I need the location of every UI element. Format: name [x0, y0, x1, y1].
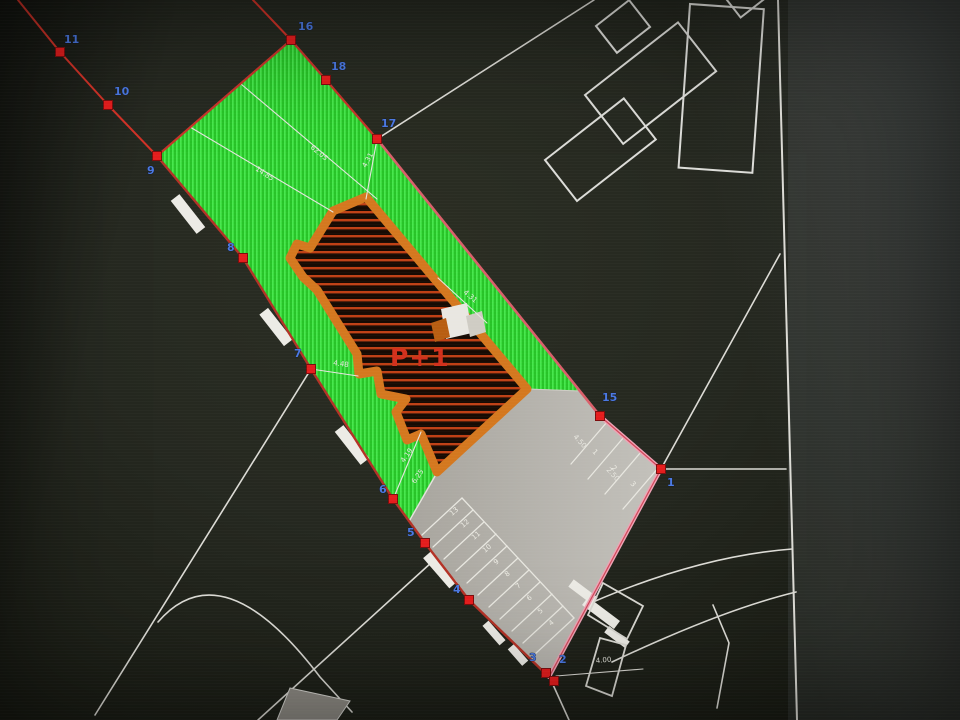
tie-line-from-1-diagonal	[661, 254, 780, 469]
road-line-bottom-center	[258, 562, 432, 720]
boundary-ext-16	[253, 0, 291, 40]
svg-text:4.00: 4.00	[595, 656, 611, 665]
tie-line-from-7	[95, 369, 311, 715]
road-bend-right	[713, 605, 729, 708]
gray-block-bottom	[277, 688, 350, 720]
point-label-7: 7	[294, 347, 302, 360]
road-arc-bottom-left	[158, 595, 352, 712]
point-label-8: 8	[227, 241, 235, 254]
cad-viewport[interactable]: P+1 62.05 14.85 4.31 4.31 4.48 4.19 6.25…	[0, 0, 960, 720]
point-label-11: 11	[64, 33, 79, 46]
point-label-16: 16	[298, 20, 314, 33]
point-label-5: 5	[407, 526, 415, 539]
building-storey-label: P+1	[390, 343, 450, 372]
boundary-chain-topleft	[18, 0, 157, 156]
point-label-1: 1	[667, 476, 675, 489]
neighbor-buildings-top-right	[545, 0, 782, 201]
tie-line-from-17	[377, 0, 594, 139]
point-label-4: 4	[453, 583, 461, 596]
point-label-6: 6	[379, 483, 387, 496]
point-label-17: 17	[381, 117, 396, 130]
point-label-10: 10	[114, 85, 130, 98]
point-label-9: 9	[147, 164, 155, 177]
road-edge-vertical	[778, 0, 797, 720]
dim-line-bottom	[556, 669, 643, 676]
point-label-15: 15	[602, 391, 617, 404]
site-plan-drawing: P+1 62.05 14.85 4.31 4.31 4.48 4.19 6.25…	[0, 0, 960, 720]
point-label-18: 18	[331, 60, 346, 73]
point-label-2: 2	[559, 653, 567, 666]
point-label-3: 3	[529, 651, 537, 664]
road-curve-bottom-right-2	[612, 592, 796, 662]
